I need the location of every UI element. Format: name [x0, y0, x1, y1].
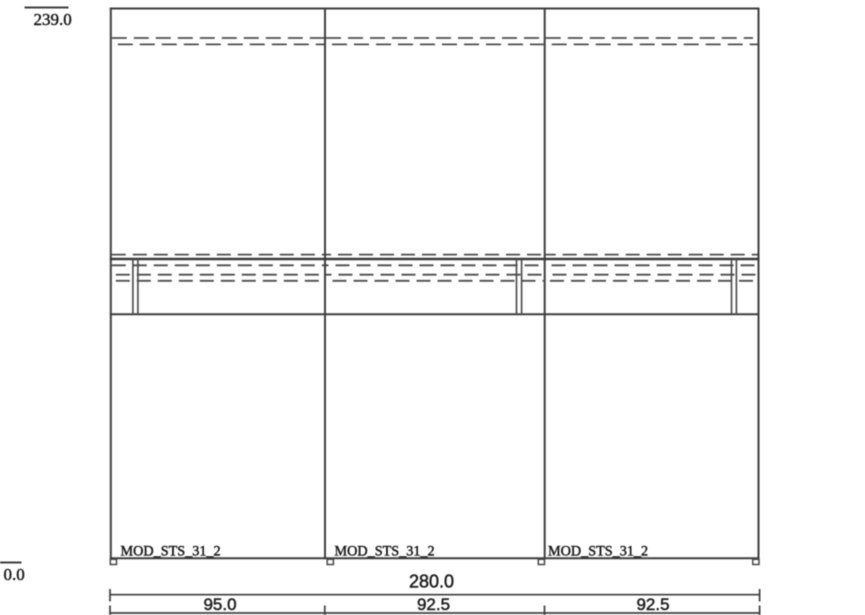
svg-text:92.5: 92.5 — [417, 595, 450, 614]
svg-text:0.0: 0.0 — [4, 565, 25, 584]
svg-text:MOD_STS_31_2: MOD_STS_31_2 — [548, 544, 648, 560]
svg-text:280.0: 280.0 — [409, 572, 454, 592]
svg-text:239.0: 239.0 — [34, 10, 72, 29]
svg-text:92.5: 92.5 — [636, 595, 669, 614]
svg-text:95.0: 95.0 — [203, 595, 236, 614]
svg-text:MOD_STS_31_2: MOD_STS_31_2 — [335, 544, 435, 560]
svg-text:MOD_STS_31_2: MOD_STS_31_2 — [121, 544, 221, 560]
